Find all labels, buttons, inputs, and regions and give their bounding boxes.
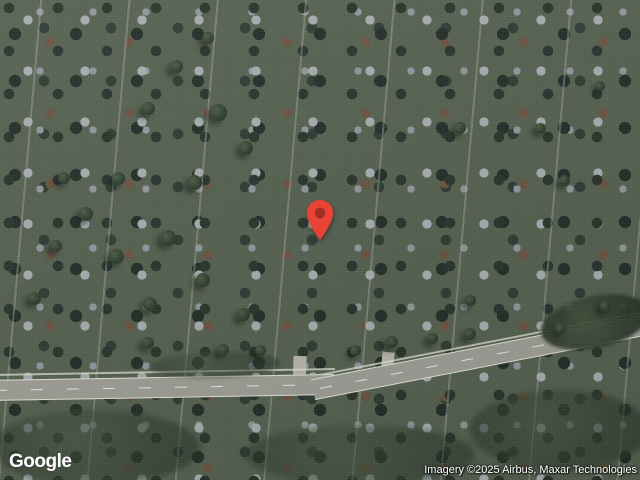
tree xyxy=(427,333,438,344)
tree xyxy=(79,207,93,221)
tree xyxy=(210,104,227,121)
tree xyxy=(143,297,157,311)
tree xyxy=(142,337,154,349)
tree xyxy=(109,249,124,264)
tree-canopy-shadow xyxy=(470,390,640,470)
tree xyxy=(217,344,229,356)
tree xyxy=(202,32,214,44)
google-logo[interactable]: Google xyxy=(9,451,71,473)
tree xyxy=(142,102,155,115)
tree xyxy=(386,336,398,348)
tree xyxy=(170,60,183,73)
imagery-attribution: Imagery ©2025 Airbus, Maxar Technologies xyxy=(424,464,637,476)
tree xyxy=(50,240,62,252)
tree xyxy=(464,328,476,340)
tree xyxy=(555,323,566,334)
tree xyxy=(535,123,546,134)
tree xyxy=(237,308,250,321)
tree xyxy=(454,122,466,134)
tree xyxy=(196,273,210,287)
tree xyxy=(58,172,70,184)
tree xyxy=(187,175,202,190)
tree xyxy=(559,175,570,186)
location-pin-icon[interactable] xyxy=(305,199,335,241)
tree xyxy=(112,172,125,185)
tree xyxy=(239,141,253,155)
tree xyxy=(465,295,476,306)
tree xyxy=(28,292,41,305)
tree xyxy=(600,301,611,312)
tree xyxy=(160,230,176,246)
map-canvas[interactable]: Google Imagery ©2025 Airbus, Maxar Techn… xyxy=(0,0,640,480)
tree xyxy=(350,345,361,356)
tree xyxy=(255,345,266,356)
tree xyxy=(595,81,605,91)
